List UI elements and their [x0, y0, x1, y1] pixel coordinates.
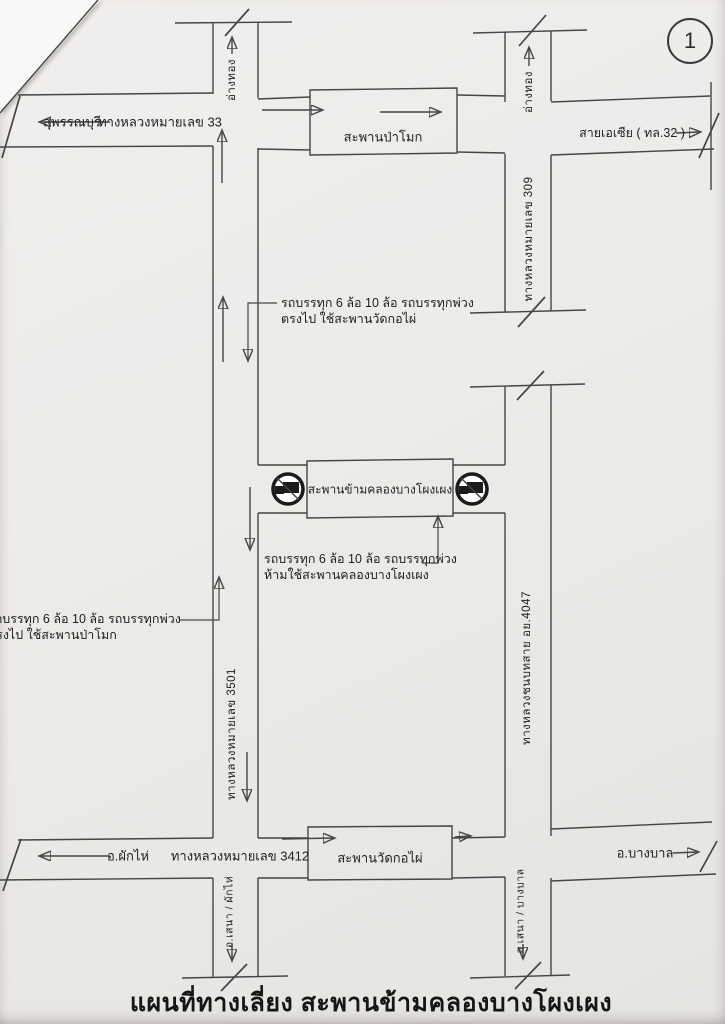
note-line: รถบรรทุก 6 ล้อ 10 ล้อ รถบรรทุกพ่วง [0, 611, 181, 627]
map-linework [0, 0, 725, 1024]
label-pamok-bridge: สะพานป่าโมก [344, 127, 423, 148]
note-line: ตรงไป ใช้สะพานวัดกอไผ่ [281, 311, 474, 327]
note-no-cross: รถบรรทุก 6 ล้อ 10 ล้อ รถบรรทุกพ่วง ห้ามใ… [264, 551, 457, 583]
label-sena-phakhai: อ.เสนา / ผักไห่ [221, 876, 238, 948]
label-angthong-left: อ่างทอง [223, 59, 241, 101]
label-center-bridge: สะพานข้ามคลองบางโผงเผง [308, 481, 452, 500]
east-arrow-kophai-2 [455, 836, 470, 837]
fold-edge-line [0, 0, 98, 113]
page-number-badge: 1 [667, 18, 713, 64]
label-rural-road-4047: ทางหลวงชนบทสาย อย.4047 [518, 591, 536, 745]
note-line: รถบรรทุก 6 ล้อ 10 ล้อ รถบรรทุกพ่วง [264, 551, 457, 567]
note-straight-pamok: รถบรรทุก 6 ล้อ 10 ล้อ รถบรรทุกพ่วง ตรงไป… [0, 611, 181, 643]
label-asia-route: สายเอเซีย ( ทล.32 ) [579, 123, 685, 143]
label-highway-309: ทางหลวงหมายเลข 309 [520, 177, 538, 302]
note-line: รถบรรทุก 6 ล้อ 10 ล้อ รถบรรทุกพ่วง [281, 295, 474, 311]
label-highway-33: ทางหลวงหมายเลข 33 [98, 112, 222, 133]
map-title: แผนที่ทางเลี่ยง สะพานข้ามคลองบางโผงเผง [130, 983, 612, 1023]
note-line: ตรงไป ใช้สะพานป่าโมก [0, 627, 181, 643]
note-straight-kophai: รถบรรทุก 6 ล้อ 10 ล้อ รถบรรทุกพ่วง ตรงไป… [281, 295, 474, 327]
note-line: ห้ามใช้สะพานคลองบางโผงเผง [264, 567, 457, 583]
label-phak-hai: อ.ผักไห่ [107, 846, 149, 867]
detour-map-page: 1 สุพรรณบุรี ทางหลวงหมายเลข 33 สะพานป่าโ… [0, 0, 725, 1024]
east-arrow-bangban [673, 852, 698, 853]
label-highway-3412: ทางหลวงหมายเลข 3412 [171, 846, 309, 867]
label-suphanburi: สุพรรณบุรี [43, 112, 101, 133]
label-highway-3501: ทางหลวงหมายเลข 3501 [223, 668, 241, 800]
no-trucks-sign-icon [271, 472, 306, 507]
label-sena-bangban: อ.เสนา / บางบาล [512, 868, 529, 953]
leader-straight-kophai [248, 303, 277, 360]
no-trucks-sign-icon [455, 472, 490, 507]
label-bang-ban: อ.บางบาล [617, 843, 674, 864]
east-arrow-kophai-1 [282, 838, 334, 839]
label-angthong-right: อ่างทอง [520, 71, 538, 113]
label-wat-kophai-bridge: สะพานวัดกอไผ่ [337, 848, 422, 869]
